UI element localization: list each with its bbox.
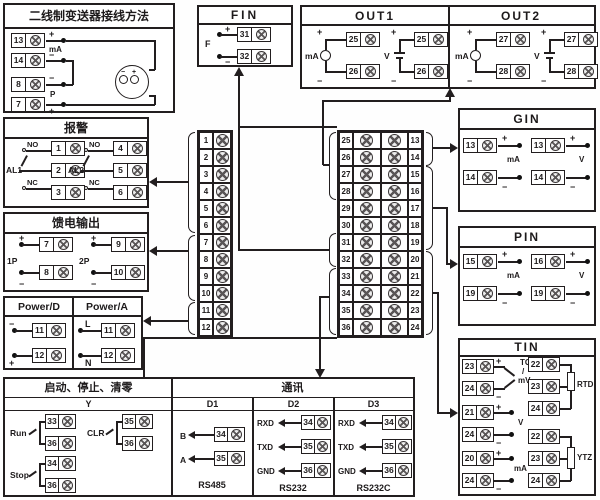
strip-row: 3624 xyxy=(339,319,422,336)
screw-terminal-icon xyxy=(47,348,66,363)
wire xyxy=(149,69,155,71)
strip-row: 5 xyxy=(199,200,231,217)
control-comm-box: 启动、停止、清零 通讯 Y D1 D2 D3 Run 33 36 CLR 35 … xyxy=(3,377,415,497)
brace-terminals-7-10 xyxy=(188,235,195,301)
terminal-number: 17 xyxy=(408,200,422,217)
screw-terminal-icon xyxy=(116,348,135,363)
terminal-number: 34 xyxy=(339,285,353,302)
screw-terminal-icon xyxy=(353,319,381,336)
terminal-number: 35 xyxy=(339,302,353,319)
transmitter-box-title: 二线制变送器接线方法 xyxy=(5,5,173,29)
screw-terminal-icon xyxy=(353,217,381,234)
terminal-number: 20 xyxy=(408,251,422,268)
terminal-number: 15 xyxy=(463,254,478,269)
screw-terminal-icon xyxy=(579,64,598,79)
arrow-left-icon xyxy=(359,467,366,475)
strip-row: 12 xyxy=(199,319,231,336)
wire xyxy=(493,480,510,482)
wire-dot xyxy=(509,456,514,461)
terminal-number: 28 xyxy=(564,64,579,79)
rs232c-label: RS232C xyxy=(334,484,413,493)
txd-label: TXD xyxy=(257,444,273,452)
v-label: V xyxy=(534,52,540,61)
terminal-number: 31 xyxy=(339,234,353,251)
wire-dot xyxy=(509,478,514,483)
strip-row: 3321 xyxy=(339,268,422,285)
screw-terminal-icon xyxy=(353,302,381,319)
col-d2-header: D2 xyxy=(253,398,334,411)
pin-box: PIN 15 19 + mA − 16 19 + V − xyxy=(458,226,596,326)
wire xyxy=(566,261,586,263)
plus-sign: + xyxy=(570,134,575,143)
brace-terminals-25-28 xyxy=(329,132,336,200)
screw-terminal-icon xyxy=(213,319,231,336)
screw-terminal-icon xyxy=(546,170,565,185)
screw-icon xyxy=(360,287,373,300)
power-a-title: Power/A xyxy=(73,298,141,315)
screw-terminal-icon xyxy=(381,166,409,183)
terminal-number: 24 xyxy=(408,319,422,336)
screw-terminal-icon xyxy=(477,359,494,374)
minus-sign: − xyxy=(225,58,230,67)
screw-terminal-icon xyxy=(213,149,231,166)
terminal-number: 1 xyxy=(51,141,66,156)
plus-sign: + xyxy=(391,28,396,37)
terminal-number: 10 xyxy=(199,285,213,302)
screw-terminal-icon xyxy=(361,64,380,79)
minus-sign: − xyxy=(467,77,472,86)
control-title: 启动、停止、清零 xyxy=(5,379,172,398)
screw-terminal-icon xyxy=(546,254,565,269)
wire xyxy=(399,71,414,73)
terminal-number: 6 xyxy=(113,185,128,200)
terminal-number: 13 xyxy=(531,138,546,153)
screw-icon xyxy=(388,236,401,249)
wire xyxy=(493,412,510,414)
terminal-number: 23 xyxy=(528,379,543,394)
screw-terminal-icon xyxy=(126,265,145,280)
wire xyxy=(26,150,51,152)
nc-label: NC xyxy=(27,179,38,187)
wire xyxy=(322,100,324,165)
plus-sign: + xyxy=(9,359,14,368)
screw-terminal-icon xyxy=(213,200,231,217)
plus-sign: + xyxy=(570,250,575,259)
a-label: A xyxy=(180,456,186,465)
screw-icon xyxy=(216,185,229,198)
terminal-number: 34 xyxy=(382,415,396,430)
screw-icon xyxy=(360,219,373,232)
plus-sign: + xyxy=(541,28,546,37)
wire xyxy=(566,177,586,179)
screw-icon xyxy=(388,168,401,181)
neutral-label: N xyxy=(85,359,92,368)
screw-terminal-icon xyxy=(228,427,245,442)
arrow-left-icon xyxy=(278,443,285,451)
terminal-number: 33 xyxy=(339,268,353,285)
wire xyxy=(437,292,439,413)
wire xyxy=(498,261,518,263)
plus-sign: + xyxy=(132,69,136,76)
screw-icon xyxy=(216,321,229,334)
screw-terminal-icon xyxy=(477,427,494,442)
screw-terminal-icon xyxy=(26,33,45,48)
wire xyxy=(195,434,214,436)
minus-sign: − xyxy=(91,280,96,289)
txd-label: TXD xyxy=(338,444,354,452)
wire xyxy=(320,296,330,298)
screw-icon xyxy=(388,219,401,232)
wire xyxy=(150,320,189,322)
screw-terminal-icon xyxy=(128,141,147,156)
screw-terminal-icon xyxy=(396,439,412,454)
terminal-number: 27 xyxy=(564,32,579,47)
screw-icon xyxy=(388,321,401,334)
terminal-number: 33 xyxy=(45,414,59,429)
screw-terminal-icon xyxy=(136,436,153,451)
rxd-label: RXD xyxy=(338,420,355,428)
divider xyxy=(72,296,74,368)
f-label: F xyxy=(205,40,211,49)
minus-sign: − xyxy=(502,299,507,308)
wire xyxy=(446,207,448,264)
terminal-number: 13 xyxy=(463,138,478,153)
strip-row: 6 xyxy=(199,217,231,234)
strip-row: 2816 xyxy=(339,183,422,200)
screw-terminal-icon xyxy=(477,381,494,396)
screw-terminal-icon xyxy=(353,166,381,183)
wire xyxy=(498,177,518,179)
terminal-number: 24 xyxy=(528,401,543,416)
terminal-number: 12 xyxy=(101,348,116,363)
1p-label: 1P xyxy=(7,257,17,266)
out2-title: OUT2 xyxy=(448,7,594,24)
terminal-number: 12 xyxy=(199,319,213,336)
screw-terminal-icon xyxy=(477,405,494,420)
screw-terminal-icon xyxy=(213,251,231,268)
transmitter-box: 二线制变送器接线方法 13 14 8 7 + mA − − P + xyxy=(3,3,175,113)
arrow-left-icon xyxy=(278,467,285,475)
v-label: V xyxy=(579,156,584,164)
screw-terminal-icon xyxy=(429,64,448,79)
screw-icon xyxy=(216,151,229,164)
screw-icon xyxy=(216,219,229,232)
wire xyxy=(39,421,41,443)
screw-terminal-icon xyxy=(47,323,66,338)
brace-terminals-13-14 xyxy=(426,132,433,166)
arrow-down-icon xyxy=(315,369,325,378)
rxd-label: RXD xyxy=(257,420,274,428)
screw-terminal-icon xyxy=(213,285,231,302)
fin-box-title: FIN xyxy=(199,7,291,25)
screw-terminal-icon xyxy=(66,141,85,156)
screw-icon xyxy=(360,202,373,215)
terminal-number: 23 xyxy=(528,451,543,466)
terminal-number: 7 xyxy=(199,234,213,251)
screw-icon xyxy=(360,304,373,317)
screw-icon xyxy=(360,185,373,198)
screw-terminal-icon xyxy=(381,200,409,217)
wire xyxy=(81,330,101,332)
terminal-number: 16 xyxy=(531,254,546,269)
strip-row: 4 xyxy=(199,183,231,200)
terminal-number: 24 xyxy=(462,473,477,488)
rs232-label: RS232 xyxy=(253,484,333,493)
terminal-number: 22 xyxy=(528,357,543,372)
terminal-number: 7 xyxy=(39,237,54,252)
arrow-left-icon xyxy=(188,455,195,463)
screw-terminal-icon xyxy=(26,53,45,68)
terminal-number: 8 xyxy=(199,251,213,268)
screw-terminal-icon xyxy=(213,268,231,285)
screw-terminal-icon xyxy=(543,473,560,488)
wire xyxy=(72,60,74,85)
wire xyxy=(220,34,237,36)
wire xyxy=(432,147,451,149)
terminal-number: 2 xyxy=(199,149,213,166)
feed-output-title: 馈电输出 xyxy=(5,214,147,234)
terminal-number: 27 xyxy=(496,32,511,47)
no-label: NO xyxy=(27,141,38,149)
screw-terminal-icon xyxy=(213,234,231,251)
plus-sign: + xyxy=(317,28,322,37)
strip-row: 2917 xyxy=(339,200,422,217)
terminal-number: 19 xyxy=(531,286,546,301)
wire xyxy=(366,470,382,472)
strip-row: 3523 xyxy=(339,302,422,319)
wire xyxy=(475,71,496,73)
wire xyxy=(154,40,156,70)
wire xyxy=(549,71,564,73)
terminal-number: 34 xyxy=(214,427,228,442)
wire-dot xyxy=(585,259,590,264)
screw-terminal-icon xyxy=(59,414,76,429)
wire xyxy=(549,39,564,41)
v-label: V xyxy=(518,419,523,427)
terminal-number: 36 xyxy=(339,319,353,336)
strip-row: 9 xyxy=(199,268,231,285)
screw-icon xyxy=(216,168,229,181)
plus-sign: + xyxy=(49,30,54,39)
screw-icon xyxy=(360,253,373,266)
ma-label: mA xyxy=(305,52,319,61)
minus-sign: − xyxy=(49,51,54,60)
brace-terminals-33-36 xyxy=(329,268,336,335)
screw-icon xyxy=(360,168,373,181)
screw-terminal-icon xyxy=(381,268,409,285)
screw-terminal-icon xyxy=(478,286,497,301)
wire xyxy=(566,145,586,147)
terminal-number: 15 xyxy=(408,166,422,183)
wire xyxy=(493,434,510,436)
wire xyxy=(143,337,337,339)
screw-terminal-icon xyxy=(546,286,565,301)
plus-sign: + xyxy=(502,134,507,143)
wire xyxy=(156,181,189,183)
screw-icon xyxy=(388,151,401,164)
wire xyxy=(325,71,346,73)
wire xyxy=(498,293,518,295)
wire-dot xyxy=(517,143,522,148)
relay-lever-icon xyxy=(21,155,28,166)
wire xyxy=(15,355,32,357)
strip-row: 2715 xyxy=(339,166,422,183)
wire-dot xyxy=(585,291,590,296)
terminal-number: 36 xyxy=(45,478,59,493)
wire xyxy=(319,296,321,370)
screw-terminal-icon xyxy=(543,357,560,372)
rs485-label: RS485 xyxy=(172,481,252,490)
strip-row: 3 xyxy=(199,166,231,183)
screw-icon xyxy=(360,270,373,283)
plus-sign: + xyxy=(496,449,501,458)
screw-icon xyxy=(360,134,373,147)
terminal-number: 23 xyxy=(408,302,422,319)
ma-label: mA xyxy=(514,465,527,473)
fin-box: FIN F + 31 − 32 xyxy=(197,5,293,67)
terminal-number: 35 xyxy=(122,414,136,429)
minus-sign: − xyxy=(570,299,575,308)
relay-lever-icon xyxy=(83,155,90,166)
strip-row: 1 xyxy=(199,132,231,149)
out1-title: OUT1 xyxy=(302,7,448,24)
wire xyxy=(366,422,382,424)
screw-icon xyxy=(388,253,401,266)
screw-terminal-icon xyxy=(128,185,147,200)
run-label: Run xyxy=(10,429,27,438)
screw-terminal-icon xyxy=(252,49,271,64)
line-label: L xyxy=(85,320,91,329)
terminal-number: 14 xyxy=(408,149,422,166)
wire xyxy=(549,39,551,52)
screw-icon xyxy=(360,321,373,334)
brace-terminals-31-32 xyxy=(329,233,336,267)
strip-left: 123456789101112 xyxy=(197,130,233,338)
strip-row: 8 xyxy=(199,251,231,268)
minus-sign: − xyxy=(391,77,396,86)
screw-icon xyxy=(216,270,229,283)
screw-terminal-icon xyxy=(381,319,409,336)
feed-output-box: 馈电输出 1P + 7 − 8 2P + 9 − 10 xyxy=(3,212,149,292)
terminal-number: 3 xyxy=(199,166,213,183)
terminal-number: 36 xyxy=(382,463,396,478)
alarm-box-title: 报警 xyxy=(5,119,147,139)
brace-terminals-1-6 xyxy=(188,132,195,233)
screw-icon xyxy=(216,202,229,215)
wire xyxy=(15,330,32,332)
strip-row: 10 xyxy=(199,285,231,302)
terminal-number: 23 xyxy=(462,359,477,374)
gin-box: GIN 13 14 + mA − 13 14 + V − xyxy=(458,108,596,212)
arrow-right-icon xyxy=(450,143,458,153)
terminal-number: 5 xyxy=(199,200,213,217)
terminal-number: 16 xyxy=(408,183,422,200)
terminal-number: 4 xyxy=(113,141,128,156)
terminal-number: 29 xyxy=(339,200,353,217)
terminal-number: 14 xyxy=(531,170,546,185)
terminal-number: 22 xyxy=(408,285,422,302)
terminal-number: 13 xyxy=(11,33,26,48)
strip-row: 3018 xyxy=(339,217,422,234)
wire xyxy=(81,355,101,357)
switch-icon xyxy=(105,429,113,435)
screw-terminal-icon xyxy=(213,132,231,149)
screw-terminal-icon xyxy=(353,234,381,251)
screw-terminal-icon xyxy=(213,217,231,234)
wire xyxy=(325,39,346,41)
wire xyxy=(88,150,113,152)
screw-icon xyxy=(388,202,401,215)
terminal-number: 36 xyxy=(301,463,315,478)
wire xyxy=(66,104,155,106)
strip-row: 2614 xyxy=(339,149,422,166)
screw-terminal-icon xyxy=(59,436,76,451)
ytz-potentiometer-icon xyxy=(567,447,575,469)
screw-terminal-icon xyxy=(543,429,560,444)
divider xyxy=(448,5,450,87)
minus-sign: − xyxy=(570,183,575,192)
stop-label: Stop xyxy=(10,471,29,480)
wire-dot xyxy=(517,259,522,264)
arrow-right-icon xyxy=(450,259,458,269)
screw-terminal-icon xyxy=(381,302,409,319)
screw-terminal-icon xyxy=(116,323,135,338)
screw-terminal-icon xyxy=(478,138,497,153)
terminal-number: 35 xyxy=(214,451,228,466)
wire-dot xyxy=(509,432,514,437)
screw-terminal-icon xyxy=(353,132,381,149)
minus-sign: − xyxy=(49,74,54,83)
screw-terminal-icon xyxy=(543,401,560,416)
minus-sign: − xyxy=(502,183,507,192)
wire xyxy=(399,39,414,41)
wire xyxy=(238,249,330,251)
gnd-label: GND xyxy=(257,468,275,476)
strip-row: 3220 xyxy=(339,251,422,268)
screw-terminal-icon xyxy=(381,183,409,200)
wire xyxy=(285,470,301,472)
minus-sign: − xyxy=(19,280,24,289)
wire xyxy=(149,95,155,97)
plus-sign: + xyxy=(225,25,230,34)
terminal-number: 19 xyxy=(463,286,478,301)
screw-terminal-icon xyxy=(315,439,331,454)
arrow-left-icon xyxy=(188,431,195,439)
wire xyxy=(116,421,118,443)
switch-icon xyxy=(28,429,36,435)
terminal-number: 9 xyxy=(199,268,213,285)
terminal-number: 36 xyxy=(45,436,59,451)
screw-terminal-icon xyxy=(126,237,145,252)
wire xyxy=(475,39,477,50)
terminal-number: 24 xyxy=(462,427,477,442)
screw-terminal-icon xyxy=(579,32,598,47)
gin-box-title: GIN xyxy=(460,110,594,130)
terminal-number: 11 xyxy=(32,323,47,338)
screw-icon xyxy=(388,134,401,147)
terminal-number: 36 xyxy=(122,436,136,451)
screw-terminal-icon xyxy=(511,64,530,79)
screw-terminal-icon xyxy=(353,268,381,285)
p-label: P xyxy=(50,91,55,99)
screw-terminal-icon xyxy=(252,27,271,42)
b-label: B xyxy=(180,432,186,441)
wire xyxy=(154,95,156,105)
wire xyxy=(22,272,39,274)
power-box: Power/D Power/A − 11 + 12 L 11 N 12 xyxy=(3,296,143,370)
wire xyxy=(19,170,51,172)
arrow-left-icon xyxy=(278,419,285,427)
